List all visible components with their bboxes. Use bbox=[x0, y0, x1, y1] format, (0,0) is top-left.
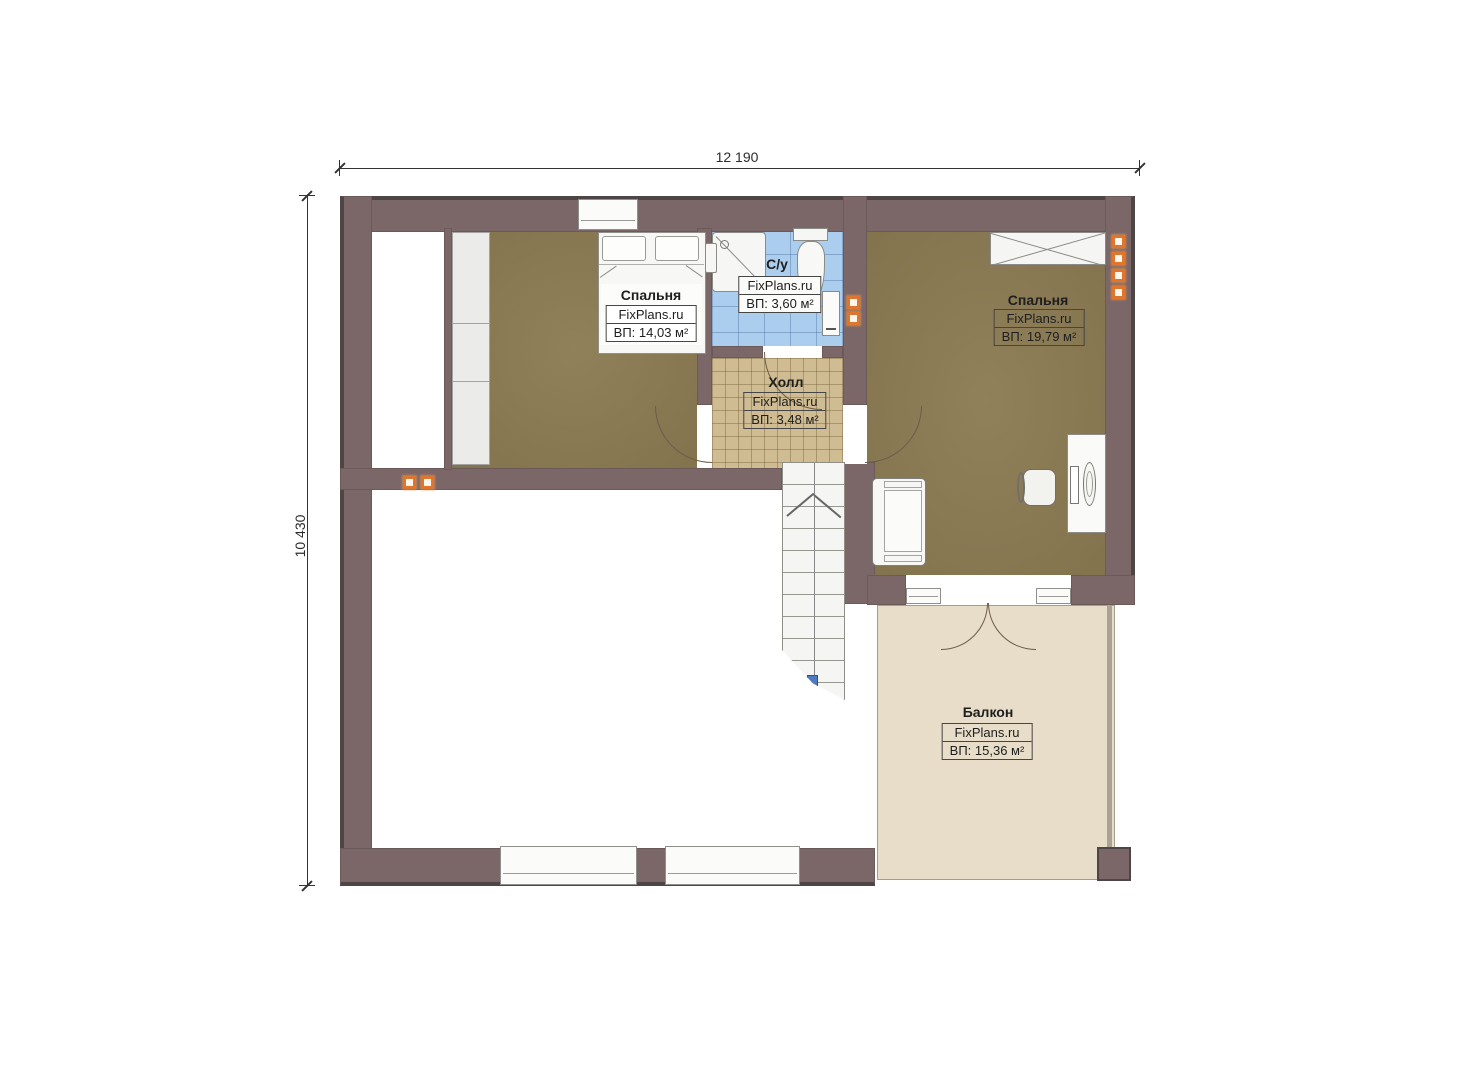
room-label-bedroom-left: Спальня FixPlans.ru ВП: 14,03 м² bbox=[601, 284, 702, 345]
balcony-railing bbox=[1107, 605, 1112, 880]
window-bottom-2 bbox=[665, 846, 800, 885]
room-area: ВП: 3,60 м² bbox=[739, 294, 820, 312]
sofa-armrest bbox=[884, 481, 922, 488]
wall-top bbox=[340, 196, 1135, 232]
wall-marker-icon bbox=[847, 296, 860, 309]
room-label-bedroom-right: FixPlans.ru ВП: 19,79 м² bbox=[994, 309, 1085, 346]
floor-plan-canvas: 12 190 10 430 bbox=[0, 0, 1474, 1080]
dimension-line-top bbox=[340, 168, 1140, 169]
wall-balcony-right bbox=[1071, 575, 1135, 605]
wall-bathroom-hall-left bbox=[712, 346, 763, 358]
dimension-height-label: 10 430 bbox=[292, 481, 308, 591]
wall-marker-icon bbox=[403, 476, 416, 489]
wardrobe-right bbox=[990, 232, 1106, 265]
balcony-sidelight-1 bbox=[906, 588, 941, 604]
room-title-balcony: Балкон bbox=[963, 704, 1014, 720]
window-sill bbox=[668, 873, 797, 874]
keyboard bbox=[1070, 466, 1079, 504]
sofa bbox=[872, 478, 926, 566]
room-info-box: FixPlans.ru ВП: 3,60 м² bbox=[738, 276, 821, 313]
wall-marker-icon bbox=[1112, 235, 1125, 248]
room-title-bathroom: С/у bbox=[766, 256, 788, 272]
stairs-up-arrow bbox=[786, 493, 814, 517]
room-label-balcony: FixPlans.ru ВП: 15,36 м² bbox=[942, 723, 1033, 760]
wall-left bbox=[340, 196, 372, 886]
sofa-armrest bbox=[884, 555, 922, 562]
watermark-text: FixPlans.ru bbox=[995, 310, 1084, 327]
room-info-box: FixPlans.ru ВП: 3,48 м² bbox=[743, 392, 826, 429]
wardrobe-divider bbox=[453, 323, 489, 324]
shower-head-icon bbox=[720, 240, 729, 249]
room-info-box: FixPlans.ru ВП: 15,36 м² bbox=[942, 723, 1033, 760]
room-info-box: FixPlans.ru ВП: 19,79 м² bbox=[994, 309, 1085, 346]
wall-marker-icon bbox=[847, 312, 860, 325]
window-top bbox=[578, 199, 638, 230]
wall-bathroom-hall-right bbox=[822, 346, 843, 358]
stairs bbox=[782, 462, 845, 700]
wardrobe-left bbox=[452, 232, 490, 465]
pillow bbox=[602, 236, 646, 261]
window-sill bbox=[909, 596, 938, 597]
sofa-seat bbox=[884, 490, 922, 552]
watermark-text: FixPlans.ru bbox=[744, 393, 825, 410]
pillow bbox=[655, 236, 699, 261]
stairs-up-arrow bbox=[813, 494, 841, 518]
watermark-text: FixPlans.ru bbox=[607, 306, 696, 323]
wall-balcony-left bbox=[867, 575, 906, 605]
window-sill bbox=[581, 220, 635, 221]
room-area: ВП: 3,48 м² bbox=[744, 410, 825, 428]
room-area: ВП: 14,03 м² bbox=[607, 323, 696, 341]
window-bottom-1 bbox=[500, 846, 637, 885]
wardrobe-divider bbox=[453, 381, 489, 382]
wall-bedroom-left-side bbox=[444, 228, 452, 470]
window-sill bbox=[503, 873, 634, 874]
wall-marker-icon bbox=[1112, 286, 1125, 299]
room-area: ВП: 15,36 м² bbox=[943, 741, 1032, 759]
wall-marker-icon bbox=[1112, 252, 1125, 265]
room-label-hall: FixPlans.ru ВП: 3,48 м² bbox=[743, 392, 826, 429]
door-opening-bedroom-right bbox=[843, 405, 867, 464]
toilet-tank bbox=[793, 228, 828, 241]
void-strip bbox=[372, 228, 444, 470]
wall-marker-icon bbox=[1112, 269, 1125, 282]
balcony-pillar bbox=[1097, 847, 1131, 881]
watermark-text: FixPlans.ru bbox=[943, 724, 1032, 741]
office-chair-back bbox=[1017, 472, 1025, 503]
office-chair bbox=[1023, 469, 1056, 506]
dimension-width-label: 12 190 bbox=[662, 149, 812, 165]
room-info-box: FixPlans.ru ВП: 14,03 м² bbox=[606, 305, 697, 342]
watermark-text: FixPlans.ru bbox=[739, 277, 820, 294]
blanket-line bbox=[599, 264, 704, 265]
stairs-start-marker bbox=[807, 675, 818, 686]
towel-radiator bbox=[822, 291, 840, 336]
wall-marker-icon bbox=[421, 476, 434, 489]
room-label-bathroom: FixPlans.ru ВП: 3,60 м² bbox=[738, 276, 821, 313]
room-title: Спальня bbox=[621, 287, 681, 303]
room-title-hall: Холл bbox=[768, 374, 803, 390]
balcony-sidelight-2 bbox=[1036, 588, 1071, 604]
monitor-inner bbox=[1086, 471, 1093, 497]
room-title-bedroom-right: Спальня bbox=[1008, 292, 1068, 308]
bathroom-sink bbox=[705, 243, 717, 273]
radiator-mark bbox=[826, 328, 836, 330]
room-area: ВП: 19,79 м² bbox=[995, 327, 1084, 345]
window-sill bbox=[1039, 596, 1068, 597]
